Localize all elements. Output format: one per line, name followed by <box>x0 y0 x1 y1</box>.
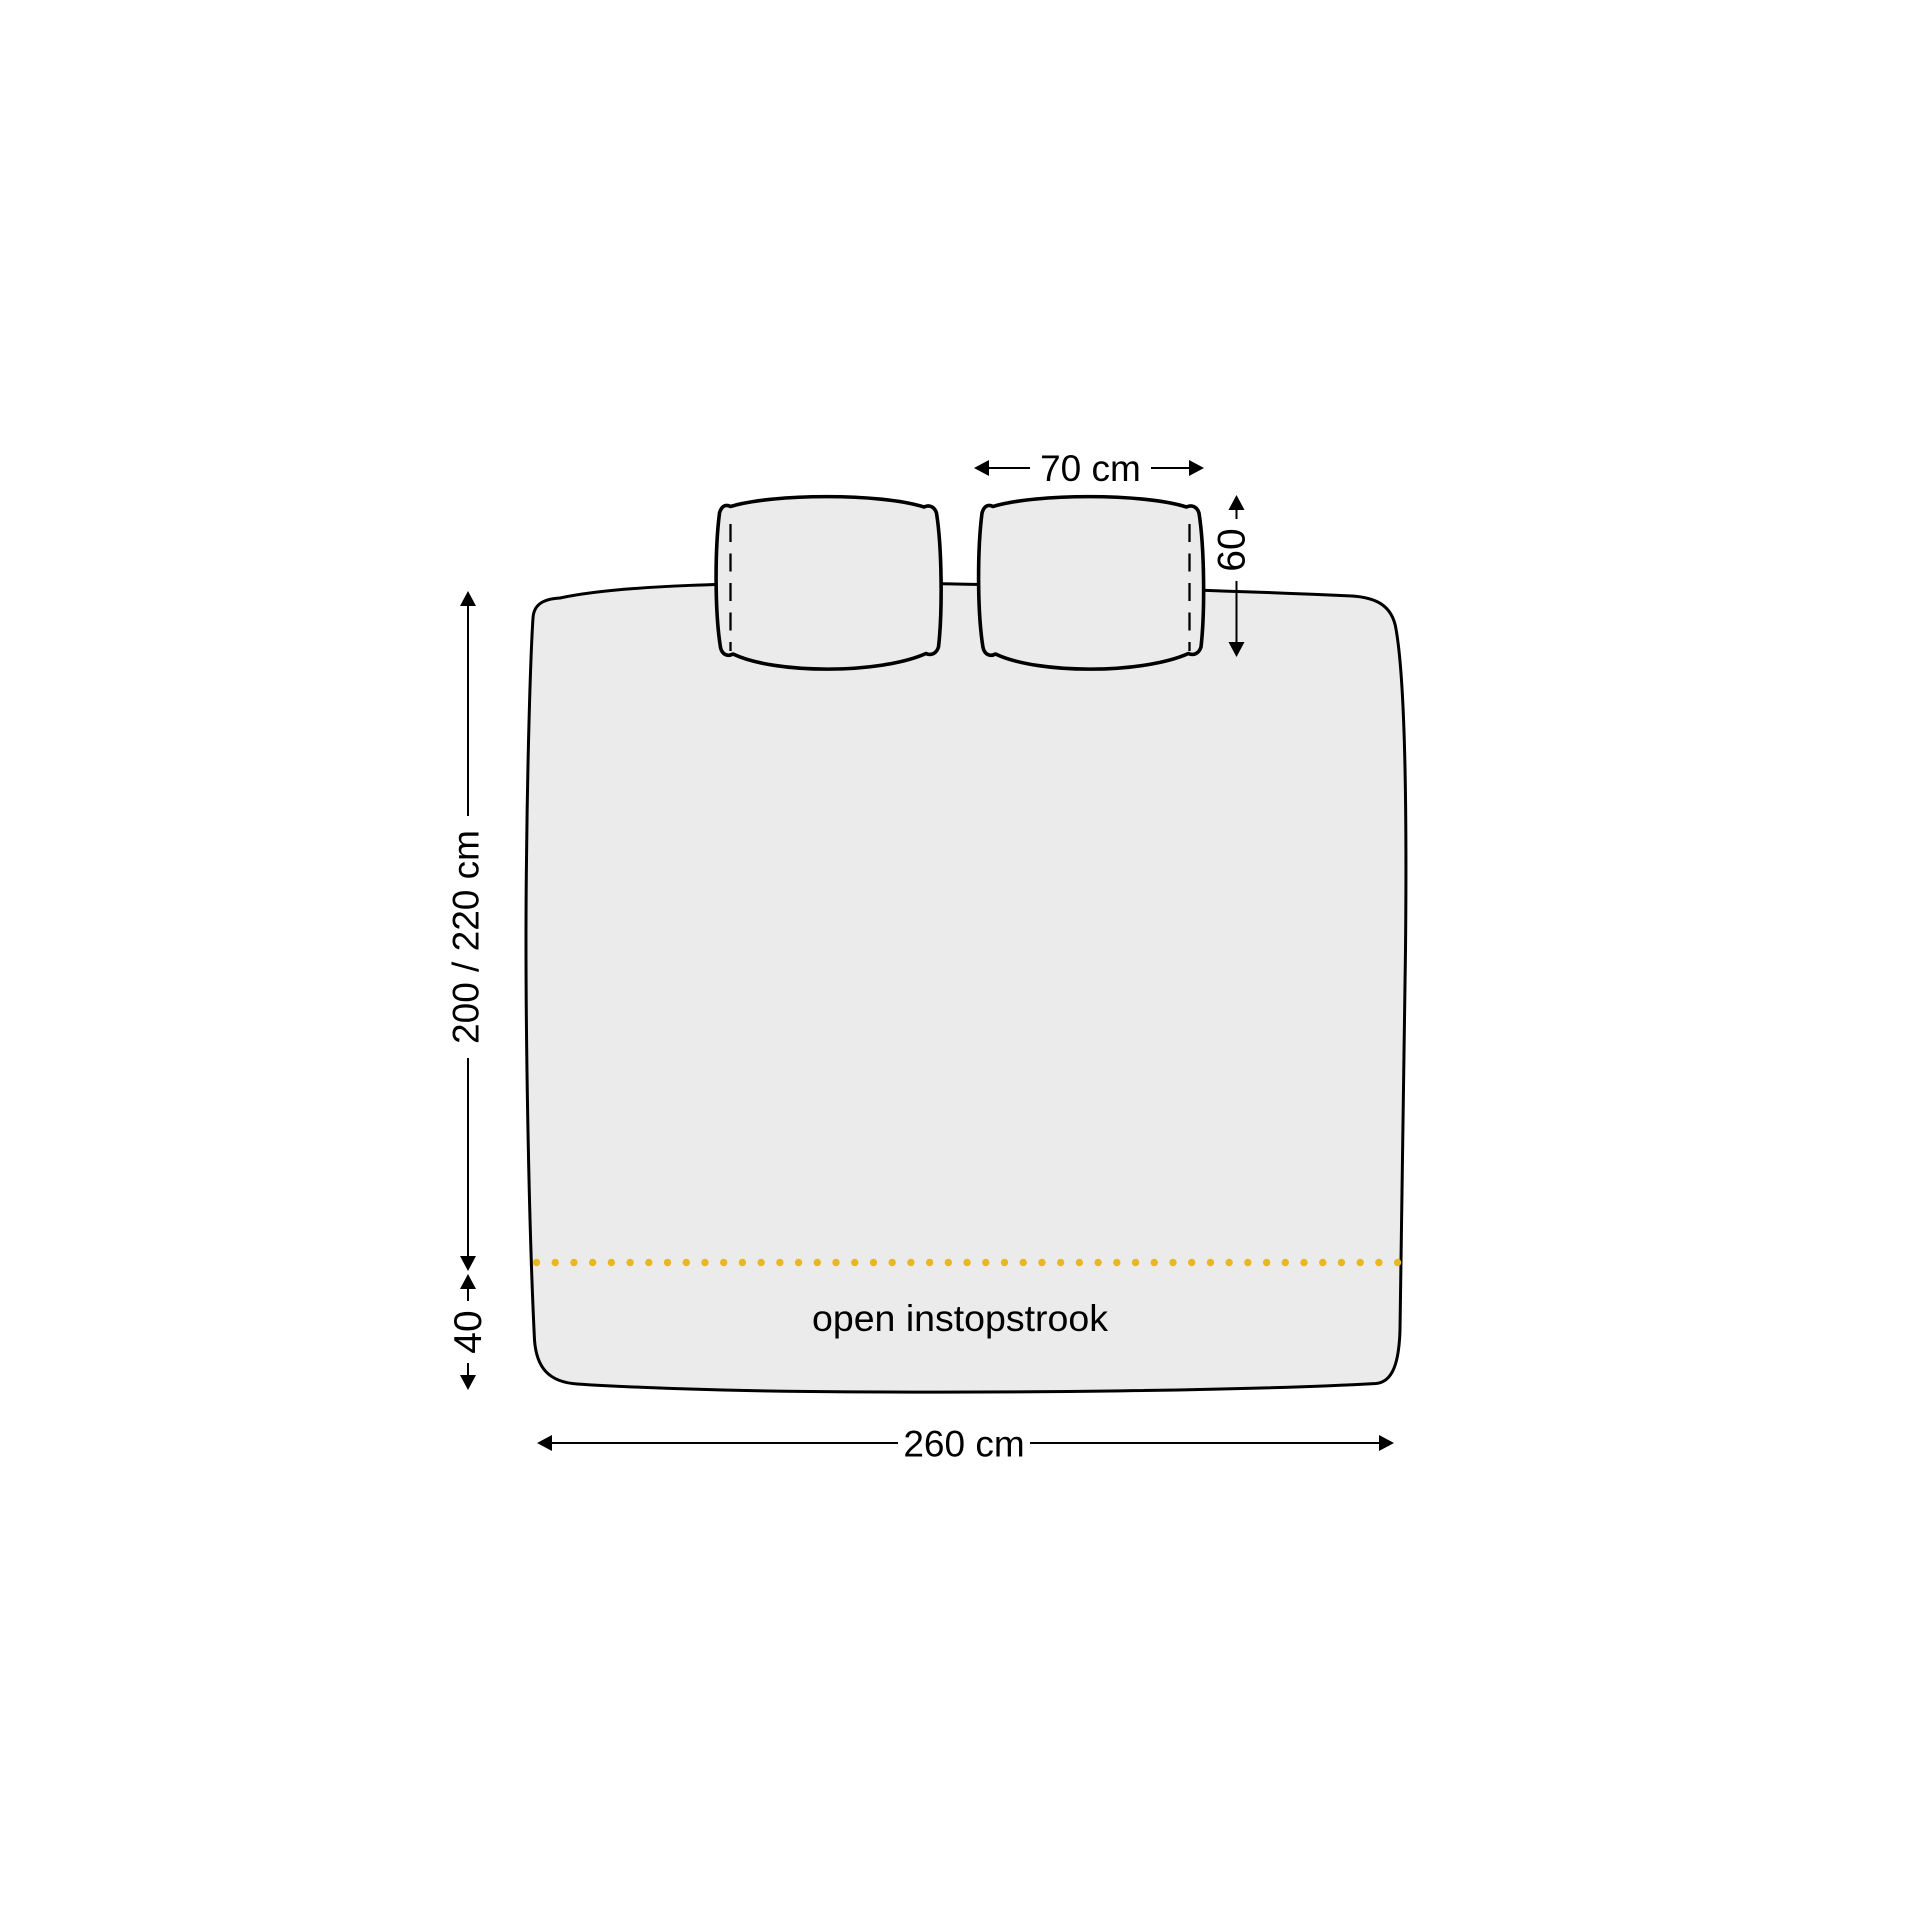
svg-text:60: 60 <box>1211 528 1254 571</box>
svg-text:70 cm: 70 cm <box>1040 448 1141 489</box>
svg-text:260 cm: 260 cm <box>903 1424 1024 1465</box>
svg-text:open instopstrook: open instopstrook <box>812 1297 1108 1339</box>
svg-text:200 / 220 cm: 200 / 220 cm <box>446 830 487 1044</box>
svg-text:40: 40 <box>447 1310 490 1353</box>
